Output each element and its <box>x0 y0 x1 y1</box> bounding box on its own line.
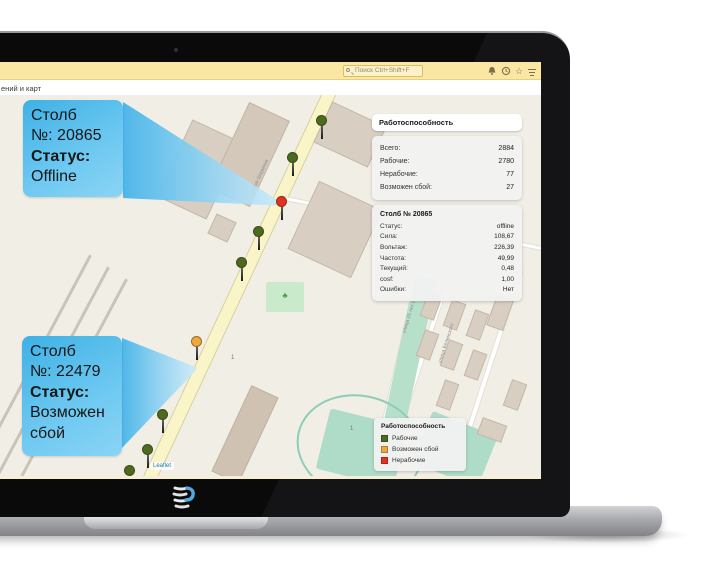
legend-swatch-fail <box>381 457 388 464</box>
callout-number: №: 20865 <box>31 126 115 146</box>
detail-row: Вольтаж:226,39 <box>380 242 514 253</box>
detail-row: Статус:offline <box>380 221 514 232</box>
map-marker-ok[interactable] <box>287 152 299 178</box>
pole-detail-title: Столб № 20865 <box>380 211 514 218</box>
detail-row: Текущий:0,48 <box>380 263 514 274</box>
map-marker-ok[interactable] <box>253 226 265 252</box>
leaflet-attribution-link[interactable]: Leaflet <box>150 462 174 470</box>
legend-item-fail: Нерабочие <box>381 455 459 466</box>
callout-title: Столб <box>30 342 114 362</box>
page-title-row: ений и карт <box>0 81 541 95</box>
map-marker-warn[interactable] <box>191 336 203 362</box>
address-label: 1 <box>350 426 353 432</box>
bell-icon[interactable] <box>487 66 497 76</box>
stats-row: Рабочие:2780 <box>380 155 514 168</box>
search-icon <box>346 68 350 72</box>
legend-item-warn: Возможен сбой <box>381 444 459 455</box>
legend-item-ok: Рабочие <box>381 433 459 444</box>
map-marker-fail[interactable] <box>276 196 288 222</box>
stats-row: Нерабочие:77 <box>380 168 514 181</box>
star-icon[interactable]: ☆ <box>514 66 524 76</box>
stats-panel-title[interactable]: Работоспособность <box>372 114 522 131</box>
page: Поиск Ctrl+Shift+F ☆ ений и карт <box>0 0 702 582</box>
callout-pole-20865: Столб №: 20865 Статус: Offline <box>23 100 123 197</box>
detail-row: Сила:108,67 <box>380 232 514 243</box>
callout-title: Столб <box>31 106 115 126</box>
address-label: 1 <box>231 355 234 361</box>
callout-status-value: Возможен сбой <box>30 403 114 444</box>
map-canvas[interactable]: ♣ ♣ улица Шаумяна улица 25 лет Октября у… <box>0 95 541 476</box>
map-marker-ok[interactable] <box>124 465 136 476</box>
pole-detail-panel: Столб № 20865 Статус:offline Сила:108,67… <box>372 205 522 301</box>
stats-panel: Работоспособность Всего:2884 Рабочие:278… <box>372 114 522 200</box>
window-bottom-strip <box>0 476 541 479</box>
legend-panel: Работоспособность Рабочие Возможен сбой … <box>374 418 466 471</box>
park-area: ♣ <box>266 282 304 312</box>
map-marker-ok[interactable] <box>316 115 328 141</box>
callout-pointer-offline <box>123 98 291 210</box>
page-title: ений и карт <box>1 84 41 93</box>
building <box>207 213 236 242</box>
callout-number: №: 22479 <box>30 362 114 382</box>
callout-status-value: Offline <box>31 167 115 187</box>
map-marker-ok[interactable] <box>157 409 169 435</box>
detail-row: Частота:49,99 <box>380 253 514 264</box>
stats-row: Возможен сбой:27 <box>380 181 514 194</box>
building <box>211 385 278 476</box>
browser-window: Поиск Ctrl+Shift+F ☆ ений и карт <box>0 62 541 479</box>
building <box>287 181 382 279</box>
callout-pole-22479: Столб №: 22479 Статус: Возможен сбой <box>22 336 122 456</box>
browser-toolbar: Поиск Ctrl+Shift+F ☆ <box>0 62 541 80</box>
tree-icon: ♣ <box>282 291 287 300</box>
callout-status-label: Статус: <box>31 148 90 165</box>
stats-row: Всего:2884 <box>380 142 514 155</box>
building <box>503 379 528 411</box>
detail-row: Ошибки:Нет <box>380 285 514 296</box>
search-input[interactable]: Поиск Ctrl+Shift+F <box>343 65 423 77</box>
legend-swatch-warn <box>381 446 388 453</box>
legend-title: Работоспособность <box>381 423 459 430</box>
laptop-lid-notch <box>84 517 268 529</box>
webcam-icon <box>174 48 178 52</box>
building <box>436 379 460 410</box>
menu-icon[interactable] <box>527 67 537 77</box>
detail-row: cosf:1,00 <box>380 274 514 285</box>
map-marker-ok[interactable] <box>236 257 248 283</box>
brand-logo-icon <box>167 485 199 513</box>
history-icon[interactable] <box>501 66 511 76</box>
callout-status-label: Статус: <box>30 384 89 401</box>
legend-swatch-ok <box>381 435 388 442</box>
